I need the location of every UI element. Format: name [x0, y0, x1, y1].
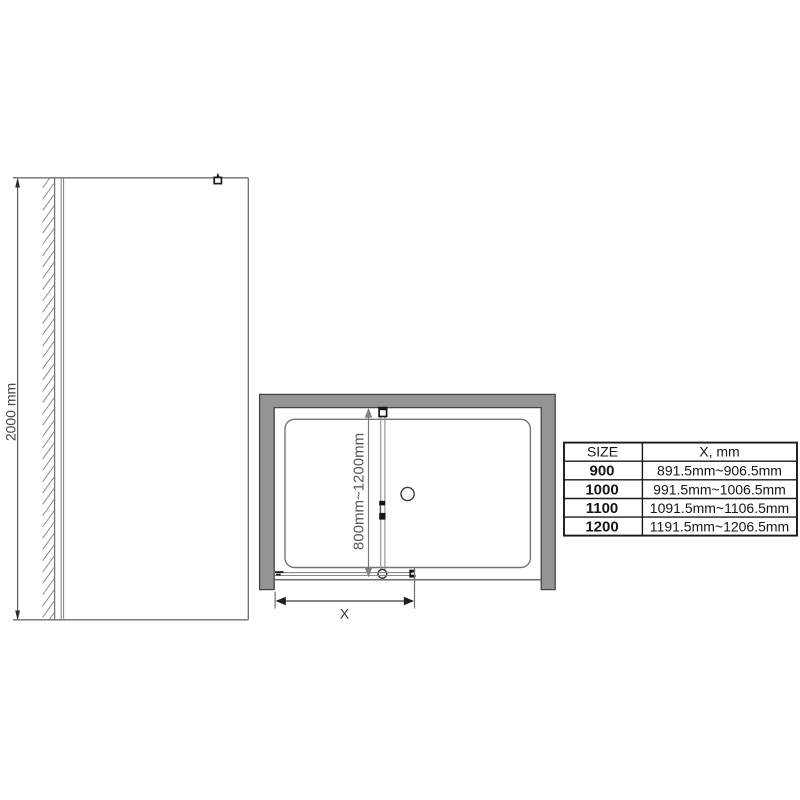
- svg-text:1200: 1200: [585, 518, 618, 535]
- svg-text:1191.5mm~1206.5mm: 1191.5mm~1206.5mm: [650, 518, 789, 534]
- svg-text:2000 mm: 2000 mm: [3, 383, 19, 441]
- svg-text:891.5mm~906.5mm: 891.5mm~906.5mm: [657, 463, 782, 479]
- svg-text:800mm~1200mm: 800mm~1200mm: [351, 433, 368, 550]
- svg-text:X, mm: X, mm: [699, 444, 739, 460]
- svg-text:SIZE: SIZE: [587, 444, 618, 460]
- svg-text:X: X: [340, 607, 349, 622]
- svg-text:1100: 1100: [586, 500, 619, 517]
- svg-text:1091.5mm~1106.5mm: 1091.5mm~1106.5mm: [650, 500, 789, 516]
- svg-text:991.5mm~1006.5mm: 991.5mm~1006.5mm: [653, 481, 786, 497]
- svg-text:1000: 1000: [585, 481, 618, 498]
- svg-text:900: 900: [589, 463, 614, 480]
